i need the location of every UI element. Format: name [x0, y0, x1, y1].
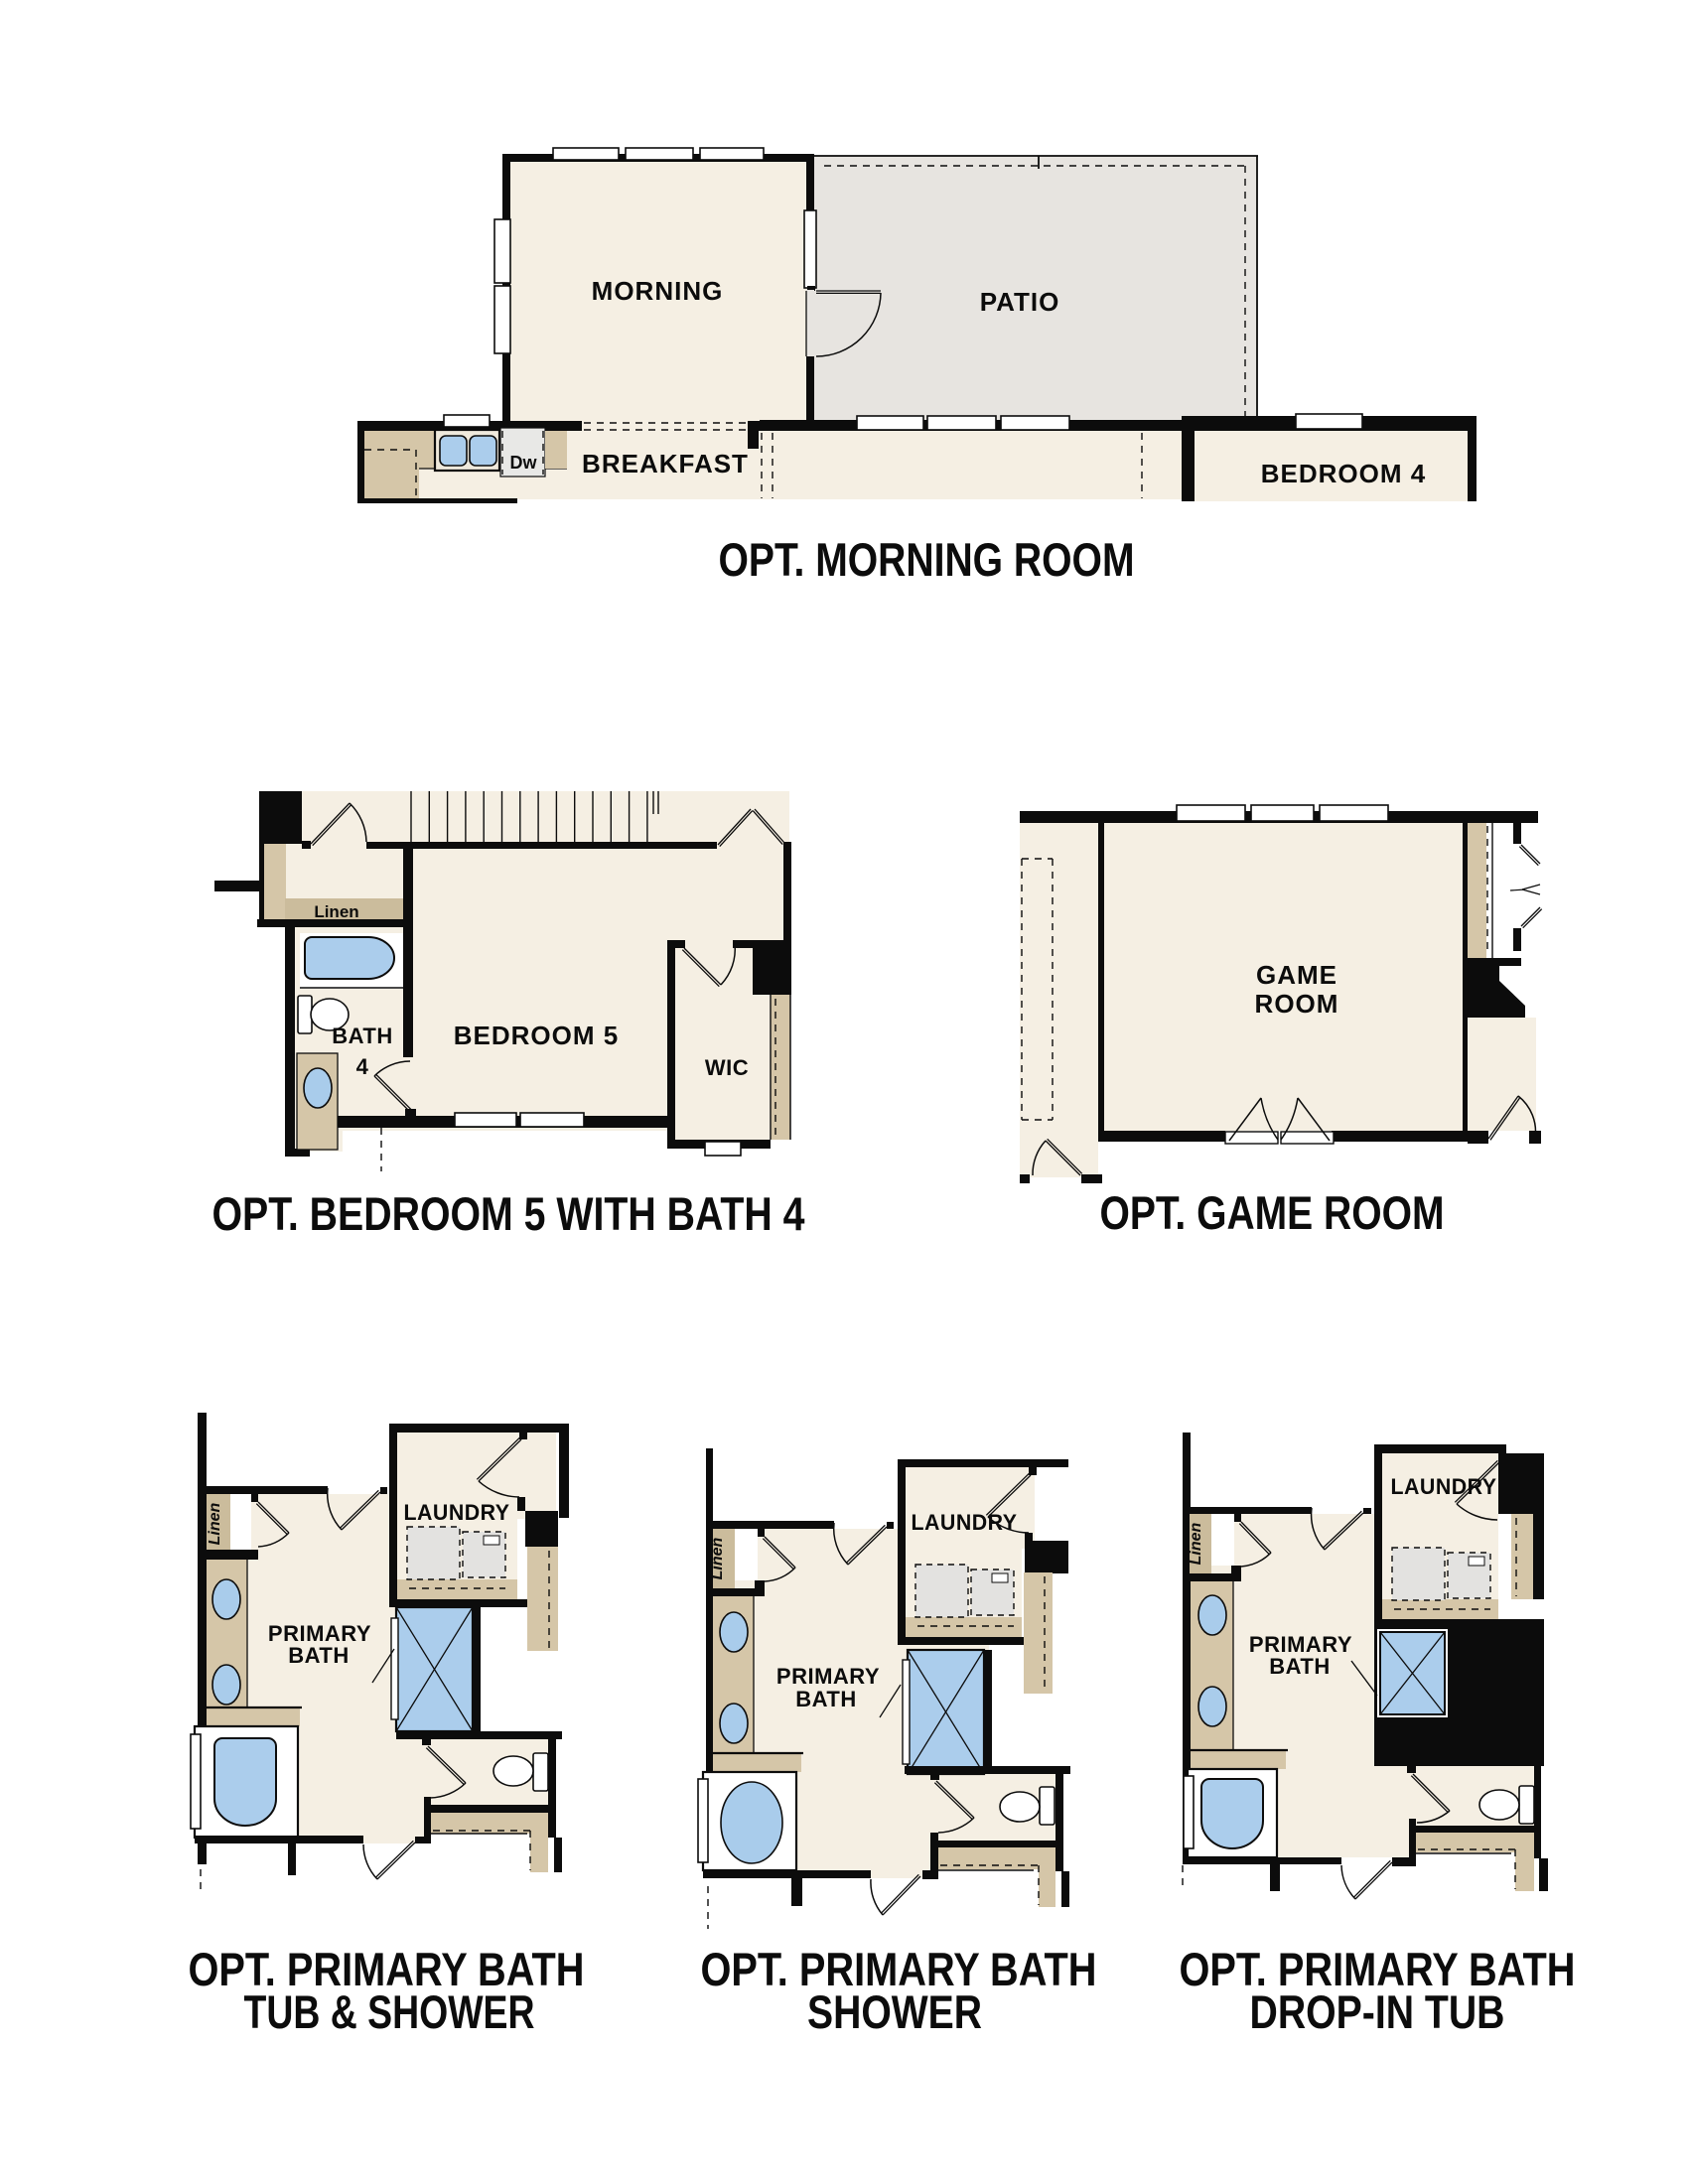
svg-text:BEDROOM 5: BEDROOM 5 [454, 1021, 619, 1050]
svg-text:LAUNDRY: LAUNDRY [912, 1510, 1018, 1535]
svg-text:Linen: Linen [709, 1537, 726, 1579]
svg-text:BATH: BATH [288, 1643, 349, 1668]
svg-text:OPT. MORNING ROOM: OPT. MORNING ROOM [719, 533, 1135, 586]
svg-text:Linen: Linen [314, 902, 358, 921]
svg-text:LAUNDRY: LAUNDRY [1391, 1474, 1497, 1499]
svg-text:BATH: BATH [795, 1687, 856, 1711]
svg-text:LAUNDRY: LAUNDRY [404, 1500, 510, 1525]
svg-text:BREAKFAST: BREAKFAST [582, 449, 749, 478]
svg-text:Dw: Dw [510, 453, 538, 473]
svg-text:BATH: BATH [332, 1024, 392, 1048]
svg-text:PRIMARY: PRIMARY [776, 1664, 880, 1689]
svg-text:TUB & SHOWER: TUB & SHOWER [244, 1985, 535, 2038]
svg-text:DROP-IN TUB: DROP-IN TUB [1250, 1985, 1505, 2038]
svg-text:MORNING: MORNING [592, 276, 724, 306]
svg-text:Linen: Linen [207, 1502, 223, 1545]
svg-text:4: 4 [356, 1054, 369, 1079]
svg-text:BATH: BATH [1269, 1654, 1330, 1679]
svg-text:ROOM: ROOM [1255, 989, 1339, 1019]
svg-text:Linen: Linen [1188, 1522, 1204, 1565]
svg-text:BEDROOM 4: BEDROOM 4 [1261, 459, 1426, 488]
svg-text:GAME: GAME [1256, 960, 1337, 990]
svg-text:OPT. BEDROOM 5 WITH BATH 4: OPT. BEDROOM 5 WITH BATH 4 [212, 1187, 805, 1240]
svg-text:PATIO: PATIO [980, 287, 1060, 317]
svg-text:OPT. GAME ROOM: OPT. GAME ROOM [1100, 1186, 1445, 1239]
svg-text:WIC: WIC [705, 1055, 749, 1080]
svg-text:SHOWER: SHOWER [807, 1985, 982, 2038]
